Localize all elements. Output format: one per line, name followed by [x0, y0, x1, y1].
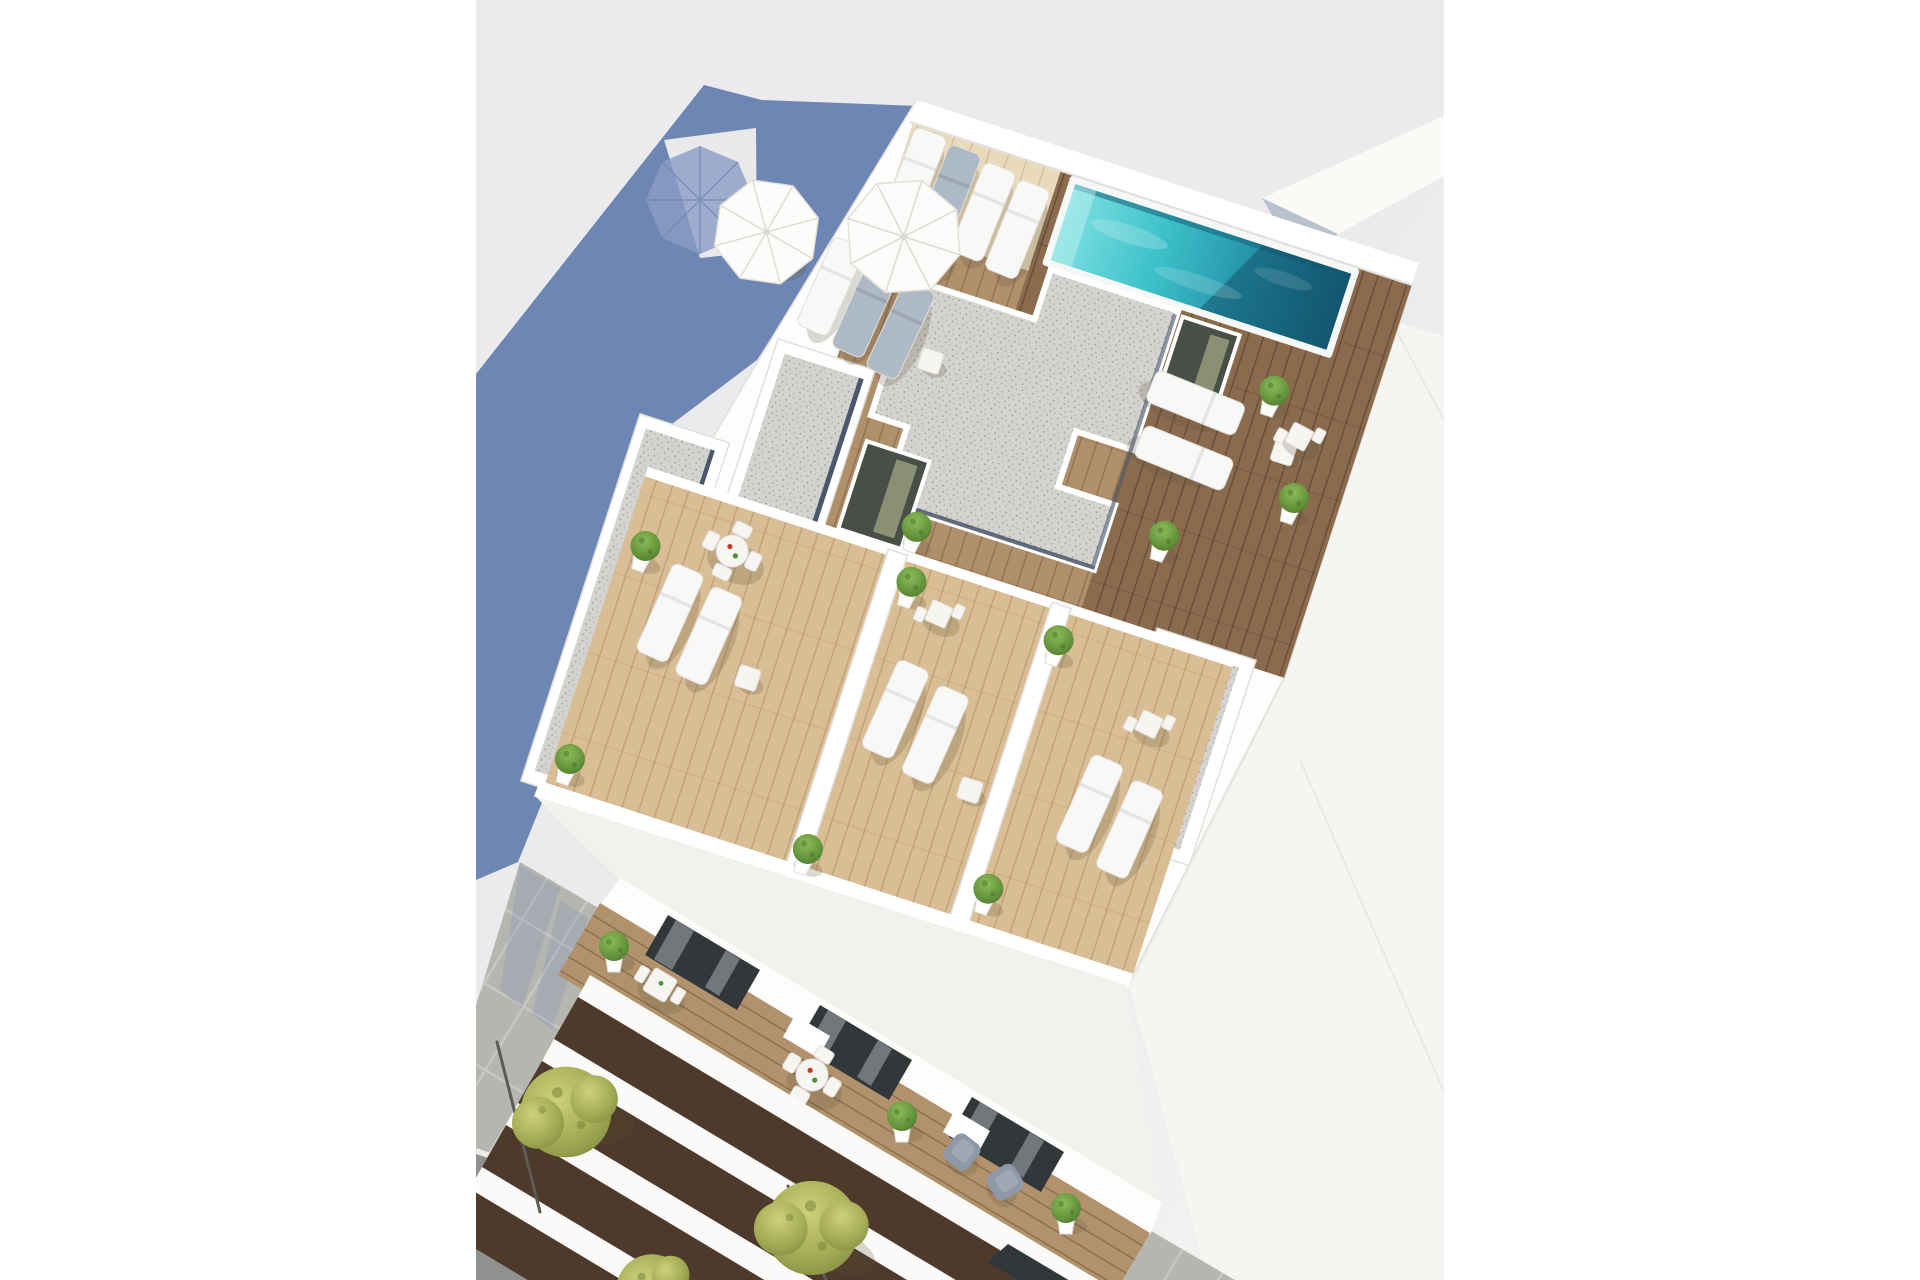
- page: [0, 0, 1920, 1280]
- render-scene: [0, 0, 1920, 1280]
